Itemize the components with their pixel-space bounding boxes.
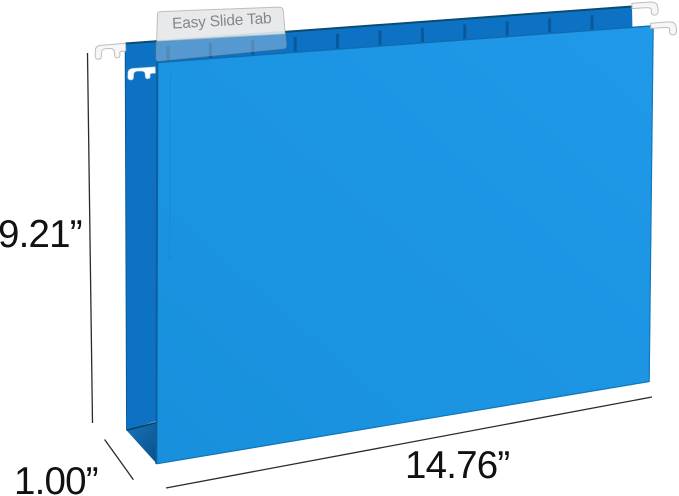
svg-text:1.00”: 1.00” [14,460,98,496]
svg-text:14.76”: 14.76” [405,444,509,487]
svg-text:9.21”: 9.21” [0,213,82,256]
